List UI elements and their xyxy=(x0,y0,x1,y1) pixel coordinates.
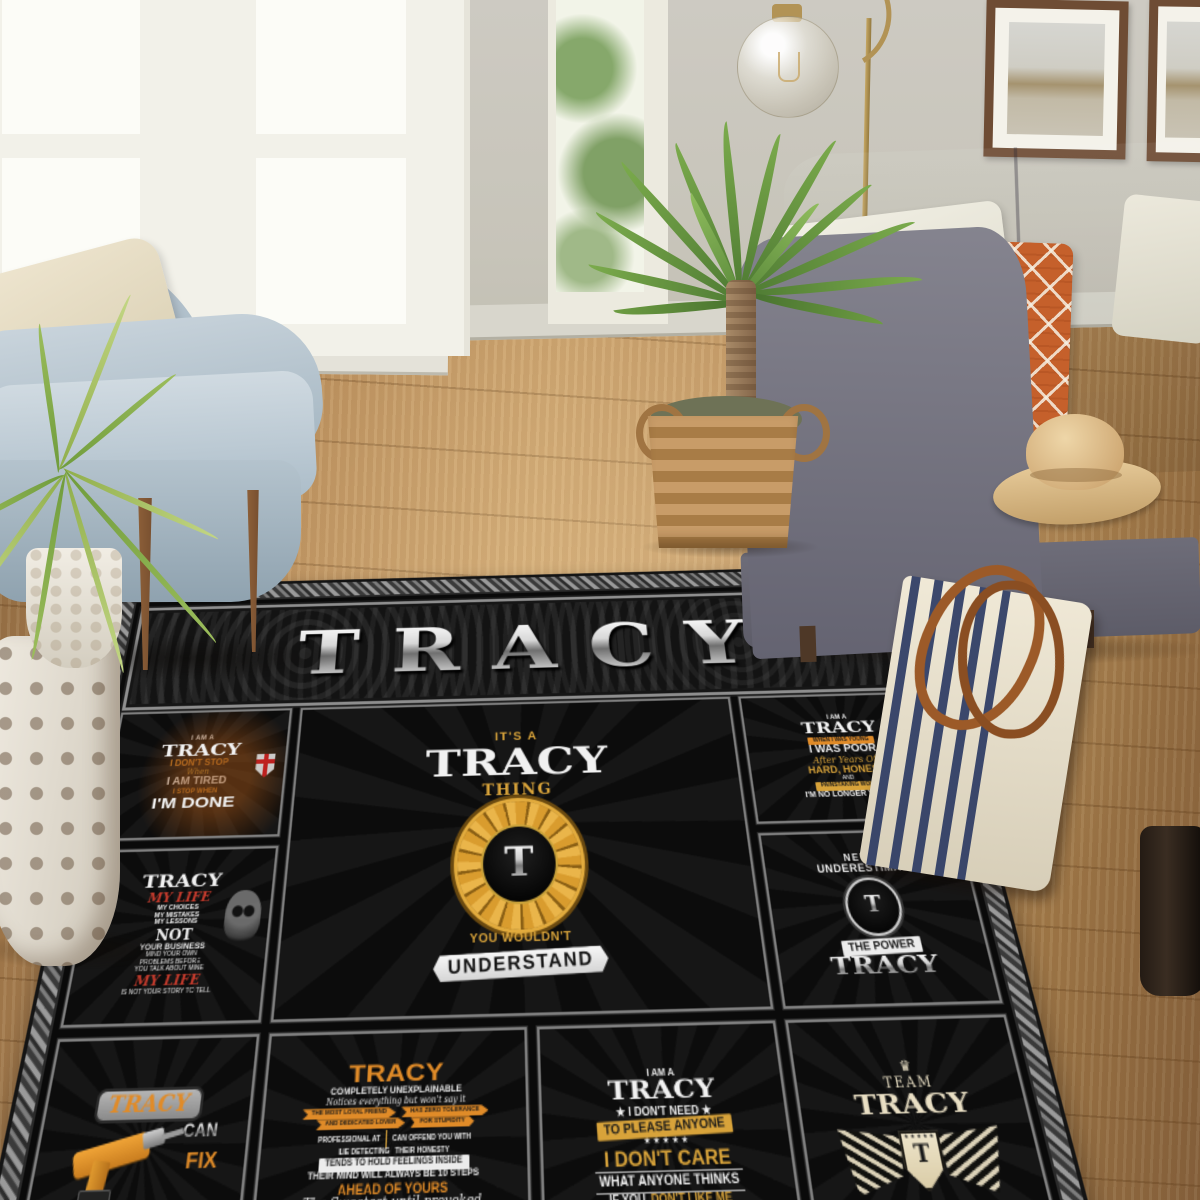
sofa-leg xyxy=(799,626,816,663)
panel-ribbon: AND DEDICATED LOVER xyxy=(315,1117,405,1130)
panel-line: IS NOT YOUR STORY TO TELL xyxy=(120,988,210,998)
drill-chuck xyxy=(142,1127,165,1150)
landscape-art xyxy=(1006,22,1105,136)
panel-line: TRACY xyxy=(160,741,242,760)
panel-line: TRACY xyxy=(800,720,877,737)
badge-letter: T xyxy=(504,842,535,886)
framed-artwork-2 xyxy=(1147,0,1200,163)
panel-line: TRACY xyxy=(830,952,942,980)
drill-graphic: CAN FIX xyxy=(46,1117,232,1200)
tote-handle xyxy=(957,580,1066,740)
panel-line: CAN OFFEND YOU WITH xyxy=(392,1133,471,1143)
panel-line: PROFESSIONAL AT xyxy=(318,1136,381,1146)
badge-center: T xyxy=(480,823,559,905)
rug-panel-tracy-thing: IT'S A TRACY THING T YOU WOULDN'T UNDERS… xyxy=(271,697,774,1022)
rug-name-text: TRACY xyxy=(262,612,782,685)
rug-panel-problem-solved: I AM A TRACY ★ I DON'T NEED ★ TO PLEASE … xyxy=(537,1020,813,1200)
lamp-filament xyxy=(778,52,800,82)
panel-line: TRACY xyxy=(607,1077,717,1107)
drill-bit xyxy=(161,1128,183,1141)
tracy-plate: TRACY xyxy=(96,1090,202,1121)
panel-line: YOU WOULDN'T xyxy=(470,931,572,947)
drill-battery xyxy=(75,1190,110,1200)
rug-panel-team-tracy: ♛ TEAM TRACY ★ ★ ★ ★ ★ T LIFETIME MEMBER xyxy=(785,1014,1072,1200)
panel-line: I DON'T CARE xyxy=(603,1145,732,1172)
dark-floor-vase xyxy=(1140,826,1200,996)
window-pane xyxy=(2,0,140,134)
framed-artwork-1 xyxy=(983,0,1128,159)
window-pane xyxy=(256,158,406,324)
panel-line: CAN xyxy=(182,1121,219,1141)
panel-ribbon: FOR STUPIDITY xyxy=(410,1116,474,1128)
shield-letter: T xyxy=(912,1140,933,1167)
panel-line: FIX xyxy=(184,1149,218,1175)
wicker-basket xyxy=(643,416,803,548)
rug-panel-unexplainable: TRACY COMPLETELY UNEXPLAINABLE Notices e… xyxy=(244,1026,533,1200)
gold-laurel-badge: T xyxy=(456,800,584,932)
living-room-photo: TRACY I AM A TRACY I DON'T STOP When I A… xyxy=(0,0,1200,1200)
straw-hat-band xyxy=(1030,468,1122,482)
eagle-wing-right xyxy=(936,1125,1014,1197)
silver-badge: T xyxy=(841,877,908,937)
white-throw-pillow-2 xyxy=(1111,193,1200,344)
badge-letter: T xyxy=(863,894,884,918)
white-ceramic-stool xyxy=(0,636,120,966)
grim-reaper-icon xyxy=(222,890,264,942)
rug-panel-knight: I AM A TRACY I DON'T STOP When I AM TIRE… xyxy=(97,708,293,841)
panel-line: TRACY xyxy=(141,872,223,892)
divider xyxy=(385,1130,387,1149)
panel-ribbon: HAS ZERO TOLERANCE xyxy=(401,1105,489,1118)
panel-line: TRACY xyxy=(853,1091,973,1123)
landscape-art xyxy=(1165,21,1200,139)
window-pane xyxy=(556,0,644,292)
window-pane xyxy=(256,0,406,134)
panel-line: The Sweetest until provoked xyxy=(302,1195,482,1200)
drill-body xyxy=(72,1131,149,1180)
picture-mat xyxy=(993,8,1120,151)
panel-line: IF YOU xyxy=(609,1193,646,1200)
panel-line: TRACY xyxy=(425,741,609,785)
panel-line: I'M DONE xyxy=(151,794,236,812)
panel-line: TRACY xyxy=(349,1060,445,1089)
panel-line: DON'T LIKE ME xyxy=(651,1191,733,1200)
picture-mat xyxy=(1156,6,1200,153)
understand-ribbon: UNDERSTAND xyxy=(433,944,610,982)
rug-panel-can-fix: TRACY CAN FIX ANYTHING EXCEPT STUPID xyxy=(5,1033,260,1200)
double-eagle-emblem: ★ ★ ★ ★ ★ T xyxy=(831,1122,1022,1200)
